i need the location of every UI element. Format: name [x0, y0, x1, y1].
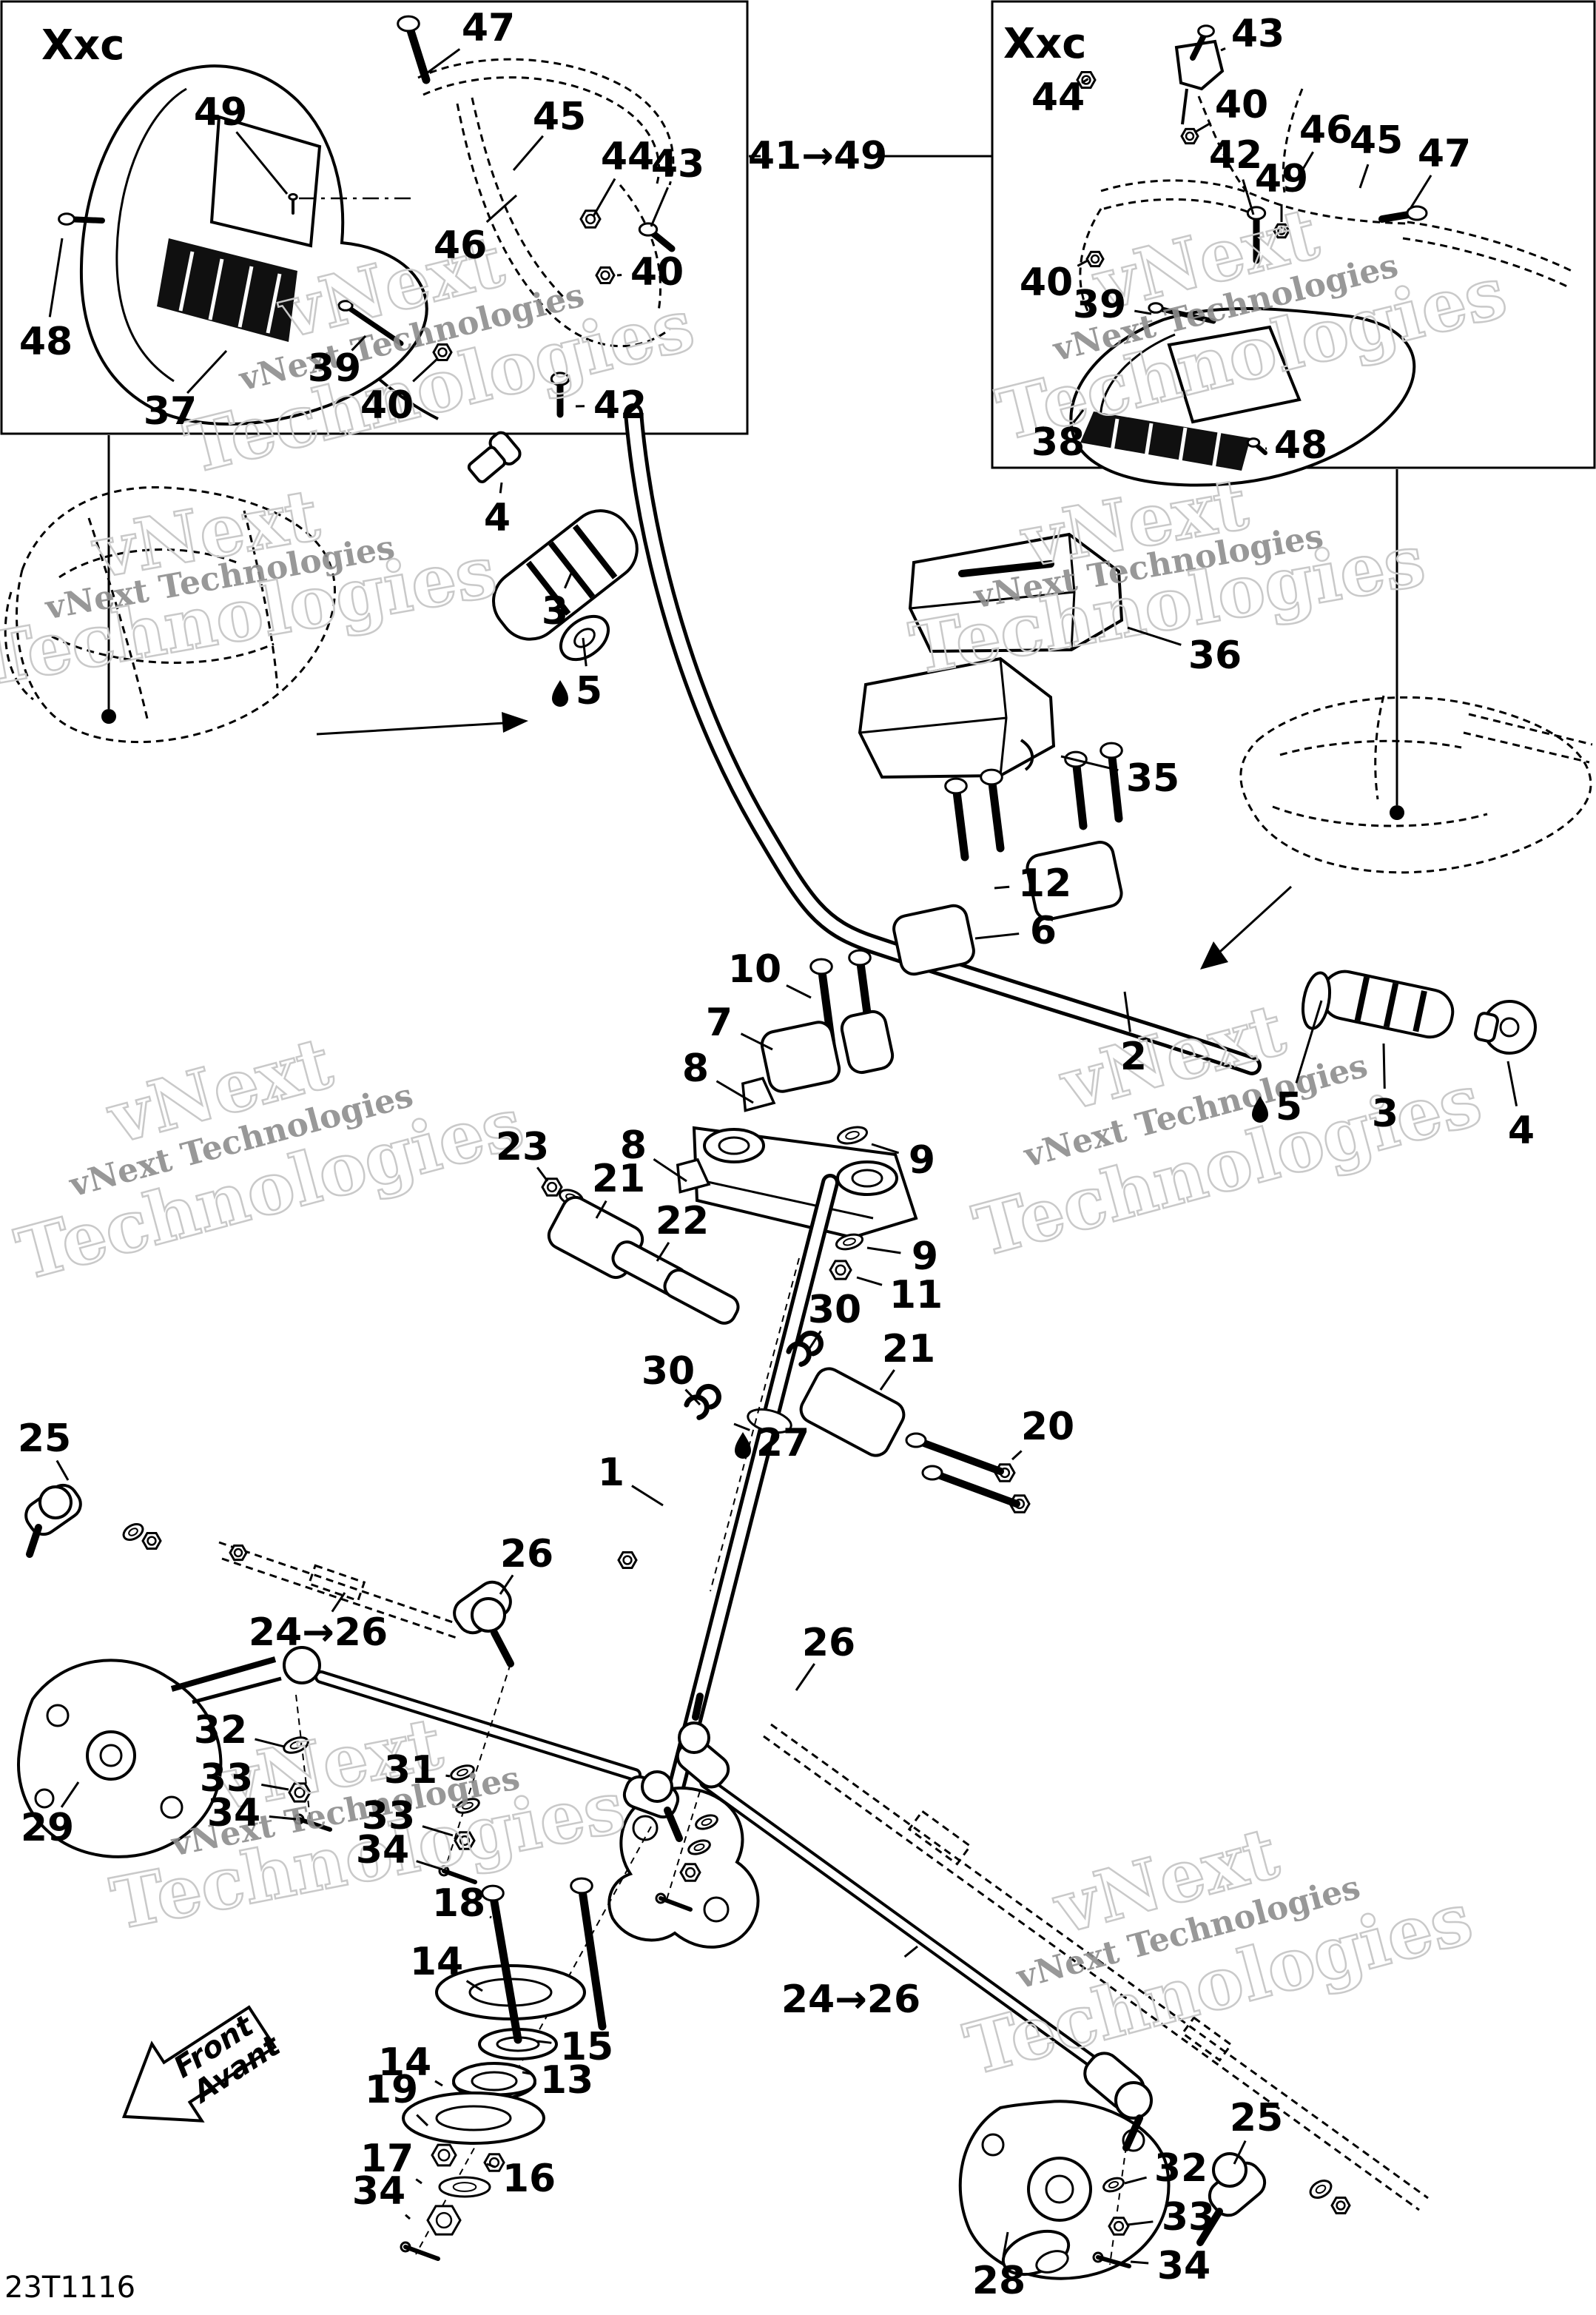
callout-47: 47: [1410, 132, 1471, 209]
clamp-block-drawing: [760, 1020, 842, 1094]
callout-label: 26: [802, 1621, 855, 1665]
callout-4: 4: [1508, 1061, 1535, 1153]
clamp-block-drawing: [661, 1266, 742, 1327]
callout-label: 6: [1030, 909, 1057, 953]
callout-label: 25: [1230, 2096, 1283, 2140]
callout-43: 43: [651, 142, 704, 226]
callout-label: 49: [1255, 157, 1308, 201]
callout-26: 26: [500, 1532, 553, 1594]
callout-26: 26: [796, 1621, 855, 1690]
callout-25: 25: [18, 1417, 71, 1480]
callout-label: 3: [542, 589, 568, 634]
callout-label: 7: [706, 1001, 733, 1045]
callout-label: 34: [352, 2169, 405, 2214]
front-direction-arrow: Front Avant: [99, 1986, 292, 2155]
oil-drop-icon: [735, 1432, 751, 1459]
leader-line: [435, 2081, 442, 2086]
pointer-dot-right: [1390, 805, 1404, 820]
oil-drop-icon: [552, 680, 568, 707]
callout-40: 40: [1196, 83, 1268, 132]
leader-line: [796, 1664, 815, 1690]
callout-label: 11: [889, 1273, 943, 1317]
callout-label: 27: [756, 1421, 809, 1465]
callout-10: 10: [728, 947, 811, 998]
callout-label: 14: [410, 1940, 463, 1984]
callout-34: 34: [1131, 2244, 1211, 2288]
leader-line: [1131, 2262, 1148, 2263]
callout-45: 45: [514, 95, 586, 170]
callout-label: 25: [18, 1417, 71, 1461]
callout-label: 35: [1126, 756, 1179, 801]
callout-label: 32: [1154, 2146, 1208, 2191]
callout-label: 20: [1021, 1405, 1074, 1449]
callout-label: 38: [1031, 420, 1085, 465]
callout-label: 40: [360, 383, 414, 428]
leader-line: [905, 1946, 917, 1957]
callout-44: 44: [593, 135, 654, 216]
leader-line: [975, 934, 1019, 938]
callout-label: 49: [194, 90, 247, 135]
callout-label: 5: [576, 669, 602, 713]
thumbnail-arrow-right: [1213, 887, 1291, 958]
callout-2: 2: [1120, 992, 1147, 1079]
clamp-block-drawing: [840, 1009, 895, 1075]
callout-label: 1: [598, 1451, 624, 1495]
leader-line: [1508, 1061, 1517, 1106]
callout-label: 33: [1162, 2195, 1215, 2240]
leader-line: [537, 1167, 548, 1181]
callout-label: 24→26: [781, 1978, 920, 2022]
callout-label: 47: [1418, 132, 1471, 176]
callout-label: 34: [1157, 2244, 1211, 2288]
leader-line: [50, 238, 62, 317]
callout-label: 44: [601, 135, 654, 179]
callout-label: 10: [728, 947, 781, 992]
callout-11: 11: [857, 1273, 943, 1317]
callout-4: 4: [484, 483, 511, 540]
pointer-dot-left: [101, 709, 116, 724]
leader-line: [994, 887, 1009, 888]
callout-label: 40: [630, 250, 684, 295]
ball-joint-drawing: [40, 1487, 71, 1518]
bolt-drawing: [582, 1886, 602, 2026]
ball-stud-drawing: [494, 1633, 511, 1664]
leader-line: [734, 1424, 750, 1430]
callout-label: 48: [19, 320, 73, 364]
callout-label: 19: [365, 2068, 418, 2112]
callout-label: 31: [384, 1748, 437, 1792]
leader-line: [787, 985, 811, 998]
leader-line: [1012, 1451, 1022, 1459]
leader-line: [57, 1461, 68, 1480]
bolt-drawing: [991, 777, 1000, 848]
callout-label: 24→26: [249, 1610, 388, 1655]
grip-right-drawing: [1299, 967, 1457, 1041]
inset-left-title: Xxc: [41, 21, 125, 70]
callout-label: 34: [356, 1828, 409, 1872]
callout-14: 14: [410, 1940, 482, 1991]
ball-joint-drawing: [679, 1723, 709, 1753]
callout-label: 39: [308, 346, 361, 391]
leader-line: [881, 1370, 895, 1390]
callout-label: 5: [1276, 1085, 1302, 1129]
callout-label: 28: [972, 2259, 1026, 2303]
leader-line: [416, 2180, 422, 2183]
bolt-drawing: [408, 24, 426, 80]
callout-label: 39: [1073, 283, 1126, 327]
callout-label: 40: [1215, 83, 1268, 127]
callout-label: 4: [1508, 1109, 1535, 1153]
callout-label: 45: [1350, 118, 1403, 163]
callout-label: 21: [592, 1157, 645, 1201]
callout-34: 34: [352, 2169, 410, 2219]
leader-line: [593, 178, 615, 216]
arrowhead-downleft-icon: [1200, 941, 1228, 970]
callout-label: 43: [651, 142, 704, 187]
callout-30: 30: [808, 1288, 861, 1348]
callout-20: 20: [1012, 1405, 1074, 1459]
callout-label: 42: [593, 383, 647, 428]
watermark: vNextvNext TechnologiesTechnologies: [0, 977, 532, 1297]
grip-end-cap-left-drawing: [463, 430, 522, 487]
bolt-drawing: [1111, 750, 1119, 819]
leader-line: [490, 1917, 491, 1918]
leader-line: [1221, 48, 1225, 50]
leader-line: [1384, 1044, 1384, 1089]
callout-21: 21: [881, 1327, 935, 1390]
callout-label: 44: [1031, 75, 1085, 120]
ball-stud-drawing: [30, 1528, 38, 1554]
drawing-code: 23T1116: [4, 2271, 135, 2305]
leader-line: [1077, 261, 1088, 266]
ball-joint-drawing: [472, 1599, 505, 1631]
callout-25: 25: [1230, 2096, 1283, 2164]
callout-45: 45: [1350, 118, 1403, 188]
callout-22: 22: [656, 1199, 709, 1261]
ball-joint-drawing: [1213, 2154, 1246, 2186]
callout-label: 23: [496, 1125, 549, 1169]
ball-joint-drawing: [1116, 2083, 1151, 2118]
leader-line: [500, 483, 502, 493]
callout-label: 26: [500, 1532, 553, 1576]
callout-43: 43: [1221, 12, 1284, 56]
watermark: vNextvNext TechnologiesTechnologies: [927, 1767, 1481, 2091]
callout-46: 46: [434, 195, 516, 268]
ball-joint-drawing: [642, 1772, 672, 1801]
callout-label: 4: [484, 496, 511, 540]
callout-48: 48: [19, 238, 73, 364]
callout-23: 23: [496, 1125, 549, 1181]
callout-label: 13: [540, 2058, 593, 2103]
callout-label: 8: [682, 1046, 709, 1091]
callout-label: 9: [912, 1234, 938, 1279]
callout-12: 12: [994, 861, 1071, 906]
callout-label: 9: [909, 1138, 935, 1183]
bolt-drawing: [1076, 759, 1083, 826]
callout-label: 48: [1274, 423, 1327, 468]
leader-line: [1410, 175, 1431, 209]
leader-line: [632, 1486, 663, 1505]
callout-label: 40: [1020, 261, 1073, 305]
callout-label: 16: [502, 2157, 556, 2201]
callout-label: 36: [1188, 634, 1242, 678]
leader-line: [445, 1775, 450, 1776]
callout-label: 37: [144, 389, 197, 434]
callout-6: 6: [975, 909, 1057, 953]
callout-24→26: 24→26: [781, 1946, 920, 2022]
callout-9: 9: [867, 1234, 938, 1279]
parts-diagram-page: Front Avant Xxc Xxc 23T1116 vNextvNext T…: [0, 0, 1596, 2315]
callout-label: 2: [1120, 1035, 1147, 1079]
leader-line: [514, 136, 543, 170]
grip-end-cap-right-drawing: [1475, 1001, 1535, 1053]
thumbnail-arrow-left: [317, 722, 516, 734]
leader-line: [867, 1248, 900, 1253]
callout-24→26: 24→26: [249, 1593, 388, 1655]
callout-48: 48: [1265, 423, 1327, 468]
leader-line: [405, 2215, 410, 2219]
callout-label: 45: [533, 95, 586, 139]
callout-41→49: 41→49: [748, 134, 887, 178]
arrowhead-right-icon: [502, 712, 528, 733]
callout-label: 43: [1231, 12, 1284, 56]
callout-label: 29: [21, 1806, 74, 1850]
callout-label: 21: [882, 1327, 935, 1371]
bolt-drawing: [956, 786, 965, 857]
leader-line: [1360, 164, 1368, 188]
callout-40: 40: [617, 250, 684, 295]
callout-label: 18: [432, 1881, 485, 1926]
watermark: vNextvNext TechnologiesTechnologies: [0, 444, 502, 702]
callout-label: 46: [434, 224, 487, 268]
callout-label: 3: [1372, 1092, 1398, 1136]
callout-label: 32: [194, 1708, 247, 1753]
ball-stud-drawing: [696, 1696, 700, 1717]
leader-line: [857, 1277, 882, 1285]
callout-label: 30: [642, 1349, 695, 1394]
callout-30: 30: [642, 1349, 700, 1405]
steering-exploded-diagram: Front Avant Xxc Xxc 23T1116 vNextvNext T…: [0, 0, 1596, 2315]
callout-label: 12: [1018, 861, 1071, 906]
callout-label: 47: [462, 6, 515, 50]
callout-label: 41→49: [748, 134, 887, 178]
steering-clamp-drawing: [694, 1128, 916, 1237]
clamp-block-drawing: [796, 1364, 908, 1460]
callout-label: 34: [207, 1791, 260, 1835]
callout-44: 44: [1031, 75, 1088, 120]
callout-label: 22: [656, 1199, 709, 1243]
inset-right-title: Xxc: [1003, 20, 1087, 68]
callout-label: 46: [1299, 108, 1353, 152]
leader-line: [1196, 123, 1211, 132]
callout-1: 1: [598, 1451, 663, 1505]
callout-18: 18: [432, 1881, 491, 1926]
leader-line: [651, 187, 668, 226]
callout-label: 30: [808, 1288, 861, 1332]
